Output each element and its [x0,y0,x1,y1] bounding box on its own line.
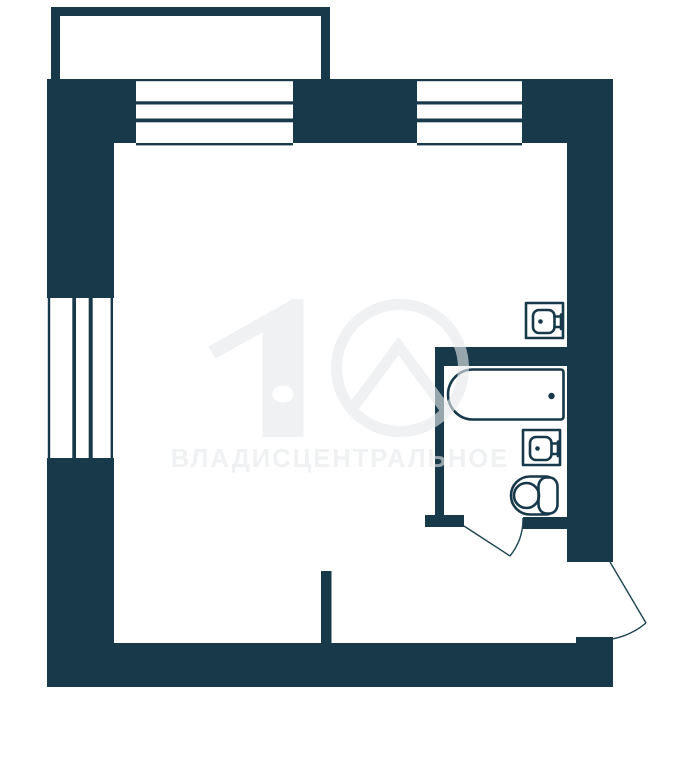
walls-group [47,79,613,687]
wash-basin-icon [523,430,560,465]
watermark-house-key-icon [209,299,304,437]
fixtures-group [448,303,563,515]
bathroom-door-leaf [464,526,510,556]
watermark-text: ВЛАДИСЦЕНТРАЛЬНОЕ [171,445,510,473]
window-top-left-edge [136,143,293,145]
wall-top-right-segment [522,79,613,143]
window-top-left-edge [136,79,293,81]
bathroom-door-swing-arc [510,518,523,556]
bathtub-drain-icon [548,393,554,399]
wall-left-upper [47,143,114,298]
toilet-bowl-icon [514,483,539,508]
entrance-door-leaf [610,562,646,623]
wall-bathroom-door-jamb [425,515,464,527]
kitchen-sink-icon [526,303,563,338]
wall-top-middle-segment [293,79,417,143]
floor-plan-drawing: ВЛАДИСЦЕНТРАЛЬНОЕ [0,0,700,772]
wall-left-lower [47,458,114,687]
wall-right-lower-block [576,637,613,687]
toilet-tank-icon [539,478,558,514]
window-top-left-mullion [136,101,293,104]
window-left-edge [48,298,50,458]
window-left-mullion [89,298,93,458]
watermark-roof-icon [349,346,448,413]
wall-top-left-segment [47,79,136,143]
window-top-right-mullion [417,101,522,104]
window-top-right-edge [417,143,522,145]
doors-group [464,518,646,639]
watermark-group: ВЛАДИСЦЕНТРАЛЬНОЕ [171,299,510,473]
balcony-outline [56,12,326,80]
entrance-door-swing-arc [612,623,646,639]
wall-right-upper [567,143,613,562]
window-top-left-mullion [136,119,293,123]
window-left-mullion [72,298,76,458]
wall-bathroom-bottom-stub [523,517,567,529]
wall-bathroom-top [435,347,567,366]
window-top-right-mullion [417,119,522,123]
floor-plan: ВЛАДИСЦЕНТРАЛЬНОЕ [0,0,700,772]
window-top-right-edge [417,79,522,81]
window-left-edge [111,298,113,458]
wall-bottom-band [113,643,576,687]
wall-hall-partition-stub [321,571,332,643]
